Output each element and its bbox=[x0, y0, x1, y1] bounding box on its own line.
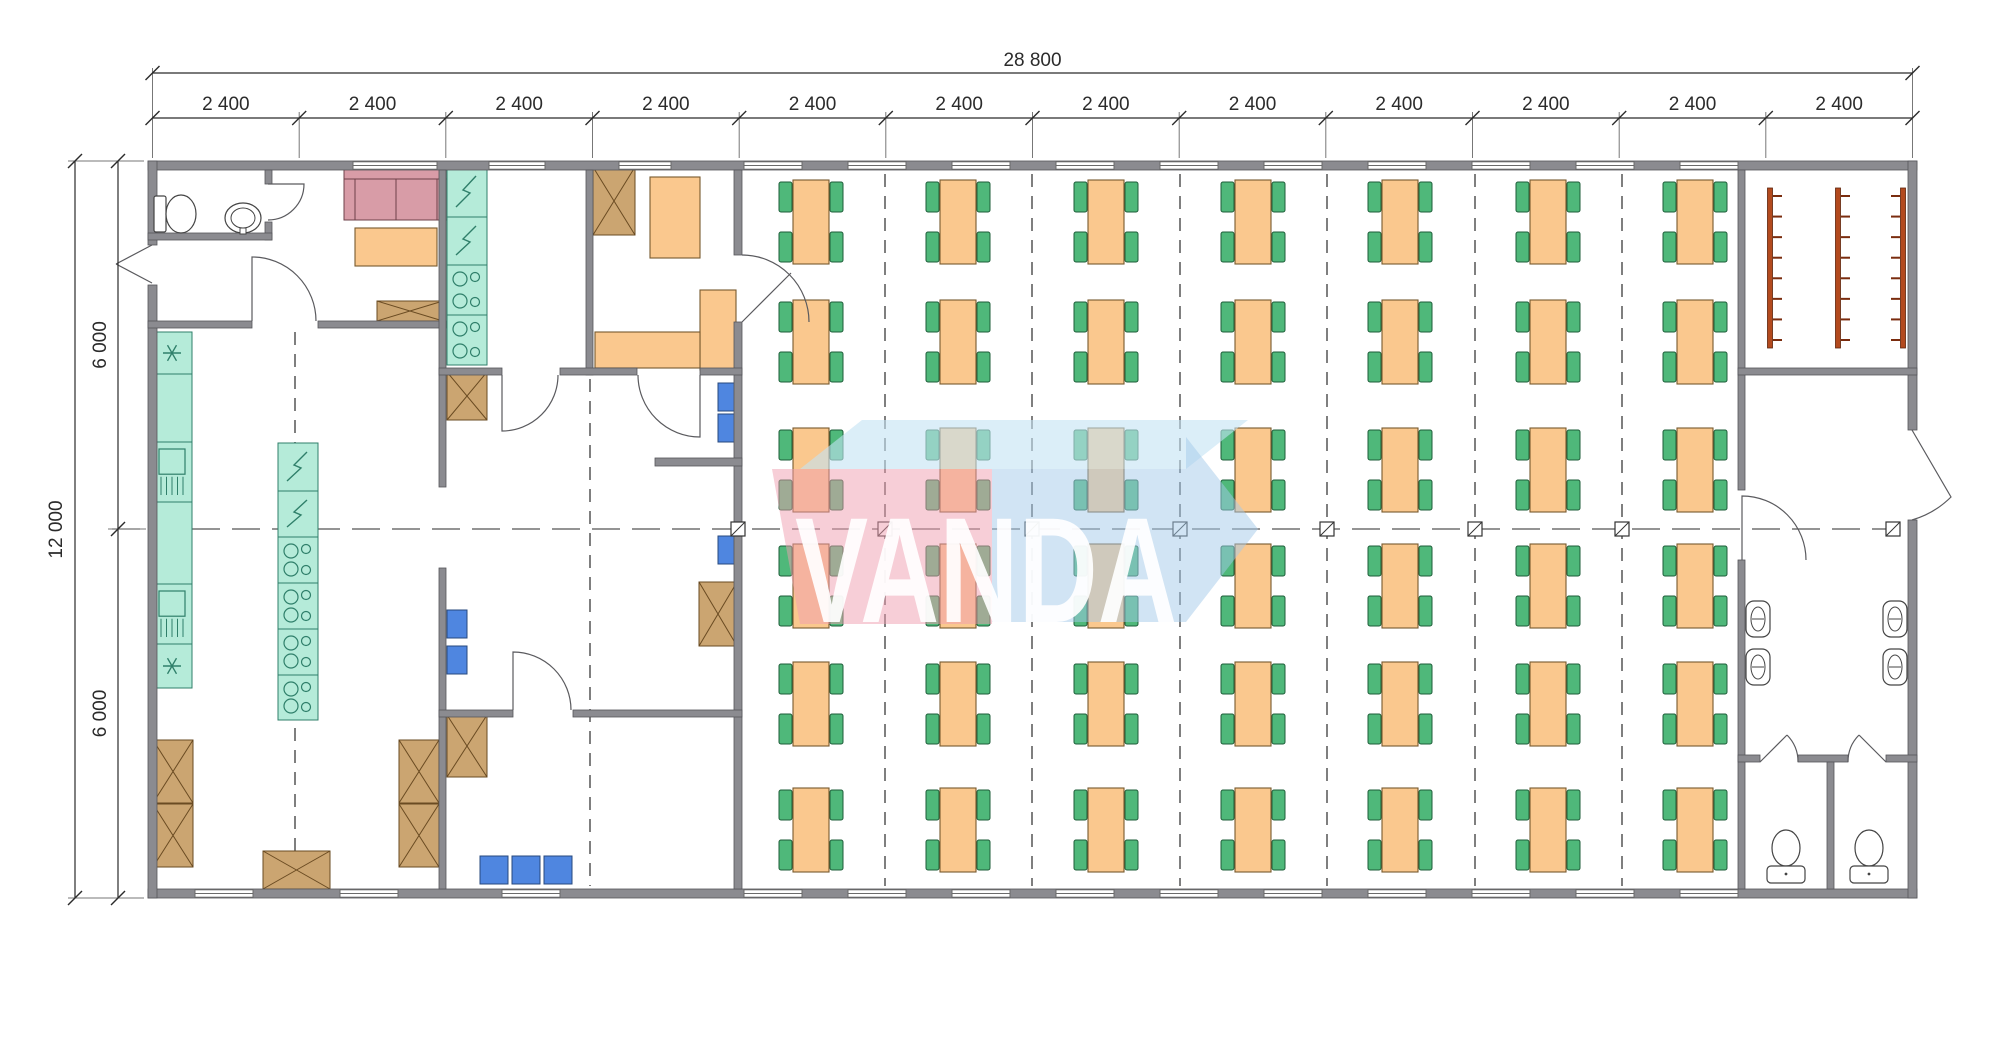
wall-segment bbox=[1738, 560, 1745, 889]
dining-table-group bbox=[1516, 788, 1580, 872]
chair bbox=[1419, 182, 1432, 212]
dining-table-group bbox=[1368, 788, 1432, 872]
chair bbox=[1272, 352, 1285, 382]
door-swing bbox=[116, 245, 152, 283]
chair bbox=[1714, 790, 1727, 820]
appliance-plain bbox=[152, 374, 192, 442]
chair bbox=[1272, 664, 1285, 694]
dining-table-group bbox=[779, 662, 843, 746]
dining-table-group bbox=[926, 662, 990, 746]
chair bbox=[1567, 596, 1580, 626]
chair bbox=[1125, 790, 1138, 820]
dining-table bbox=[793, 300, 829, 384]
door-swing bbox=[638, 375, 700, 437]
chair bbox=[1567, 714, 1580, 744]
stool bbox=[544, 856, 572, 884]
chair bbox=[1125, 840, 1138, 870]
dining-table bbox=[1382, 662, 1418, 746]
dining-table bbox=[1382, 428, 1418, 512]
chair bbox=[779, 182, 792, 212]
chair bbox=[1419, 790, 1432, 820]
chair bbox=[1516, 714, 1529, 744]
chair bbox=[779, 790, 792, 820]
chair bbox=[1663, 352, 1676, 382]
sofa-seat bbox=[396, 179, 437, 220]
chair bbox=[1714, 232, 1727, 262]
dining-table-group bbox=[1663, 544, 1727, 628]
chair bbox=[1074, 664, 1087, 694]
chair bbox=[830, 664, 843, 694]
chair bbox=[1272, 840, 1285, 870]
wc-bowl bbox=[166, 195, 196, 233]
chair bbox=[779, 302, 792, 332]
chair bbox=[1368, 546, 1381, 576]
dining-table bbox=[793, 788, 829, 872]
chair bbox=[779, 352, 792, 382]
dining-table bbox=[1382, 544, 1418, 628]
appliance-plain bbox=[152, 502, 192, 584]
dining-table bbox=[1677, 300, 1713, 384]
stool bbox=[480, 856, 508, 884]
dim-label-bay: 2 400 bbox=[1229, 94, 1277, 115]
dining-table-group bbox=[1516, 544, 1580, 628]
dining-table bbox=[1677, 180, 1713, 264]
counter-table bbox=[595, 332, 700, 368]
dim-label-bay: 2 400 bbox=[1815, 94, 1863, 115]
dining-table-group bbox=[1074, 300, 1138, 384]
chair bbox=[926, 714, 939, 744]
chair bbox=[1663, 714, 1676, 744]
chair bbox=[1221, 302, 1234, 332]
chair bbox=[1516, 430, 1529, 460]
dining-table-group bbox=[1368, 300, 1432, 384]
wall-segment bbox=[1738, 170, 1745, 490]
stool bbox=[512, 856, 540, 884]
dim-label-bay: 2 400 bbox=[935, 94, 983, 115]
chair bbox=[1419, 664, 1432, 694]
dining-table-group bbox=[1221, 300, 1285, 384]
chair bbox=[1368, 430, 1381, 460]
dining-table bbox=[1530, 428, 1566, 512]
dim-label-bay: 2 400 bbox=[1082, 94, 1130, 115]
wall-segment bbox=[586, 170, 593, 375]
dim-label-half-height: 6 000 bbox=[90, 690, 111, 738]
dim-label-overall-width: 28 800 bbox=[1003, 50, 1061, 71]
dim-label-bay: 2 400 bbox=[642, 94, 690, 115]
chair bbox=[1419, 302, 1432, 332]
dining-table bbox=[940, 300, 976, 384]
chair bbox=[1074, 232, 1087, 262]
dining-table-group bbox=[1663, 180, 1727, 264]
chair bbox=[926, 352, 939, 382]
appliance-stove bbox=[278, 583, 318, 629]
dim-label-bay: 2 400 bbox=[349, 94, 397, 115]
appliance-stove bbox=[278, 675, 318, 720]
chair bbox=[830, 790, 843, 820]
dining-table-group bbox=[1663, 300, 1727, 384]
dining-table-group bbox=[1663, 788, 1727, 872]
chair bbox=[830, 352, 843, 382]
chair bbox=[926, 182, 939, 212]
dining-table bbox=[1677, 428, 1713, 512]
sofa-arm bbox=[344, 179, 355, 220]
door-swing bbox=[1742, 496, 1806, 560]
wall-segment bbox=[148, 285, 157, 898]
chair bbox=[1074, 714, 1087, 744]
washbasin-tap bbox=[240, 228, 246, 234]
wall-segment bbox=[439, 170, 446, 487]
wall-segment bbox=[1908, 161, 1917, 430]
dining-table-group bbox=[1368, 544, 1432, 628]
chair bbox=[1714, 714, 1727, 744]
chair bbox=[779, 664, 792, 694]
dining-table-group bbox=[1516, 662, 1580, 746]
chair bbox=[1663, 546, 1676, 576]
chair bbox=[1221, 232, 1234, 262]
chair bbox=[830, 714, 843, 744]
dining-table bbox=[940, 788, 976, 872]
chair bbox=[1368, 232, 1381, 262]
dining-table-group bbox=[779, 180, 843, 264]
chair bbox=[1272, 546, 1285, 576]
dining-table bbox=[1235, 662, 1271, 746]
chair bbox=[977, 790, 990, 820]
chair bbox=[977, 714, 990, 744]
coat-rack bbox=[1836, 188, 1841, 348]
dining-table-group bbox=[1221, 180, 1285, 264]
chair bbox=[977, 352, 990, 382]
chair bbox=[1516, 302, 1529, 332]
chair bbox=[1419, 546, 1432, 576]
wc-tank bbox=[154, 196, 166, 232]
watermark: VANDA bbox=[772, 420, 1258, 654]
wall-segment bbox=[148, 233, 272, 240]
wall-segment bbox=[1798, 755, 1848, 762]
dining-table bbox=[793, 662, 829, 746]
chair bbox=[1714, 596, 1727, 626]
dim-label-bay: 2 400 bbox=[202, 94, 250, 115]
chair bbox=[830, 182, 843, 212]
chair bbox=[1663, 596, 1676, 626]
chair bbox=[1714, 352, 1727, 382]
chair bbox=[1125, 352, 1138, 382]
chair bbox=[977, 664, 990, 694]
dining-table-group bbox=[926, 788, 990, 872]
dining-table bbox=[940, 662, 976, 746]
dining-table bbox=[1530, 300, 1566, 384]
chair bbox=[779, 840, 792, 870]
dining-table-group bbox=[1516, 428, 1580, 512]
chair bbox=[1516, 790, 1529, 820]
dining-table bbox=[940, 180, 976, 264]
dim-label-overall-height: 12 000 bbox=[46, 500, 67, 558]
chair bbox=[1125, 232, 1138, 262]
coat-rack bbox=[1768, 188, 1773, 348]
stool bbox=[447, 646, 467, 674]
chair bbox=[1714, 302, 1727, 332]
dining-table bbox=[1088, 662, 1124, 746]
wall-segment bbox=[560, 368, 637, 375]
sofa-seat bbox=[355, 179, 396, 220]
chair bbox=[1074, 302, 1087, 332]
wc-base-dot bbox=[1785, 873, 1788, 876]
wall-segment bbox=[573, 710, 742, 717]
door-swing bbox=[502, 375, 558, 431]
chair bbox=[1516, 546, 1529, 576]
chair bbox=[1221, 790, 1234, 820]
chair bbox=[1567, 352, 1580, 382]
chair bbox=[1663, 430, 1676, 460]
dining-table bbox=[1382, 300, 1418, 384]
door-swing bbox=[1912, 430, 1951, 520]
chair bbox=[1567, 302, 1580, 332]
chair bbox=[1272, 302, 1285, 332]
floor-plan-canvas: 28 8002 4002 4002 4002 4002 4002 4002 40… bbox=[0, 0, 2000, 1041]
chair bbox=[1567, 480, 1580, 510]
dining-table bbox=[1088, 180, 1124, 264]
chair bbox=[1419, 596, 1432, 626]
wall-segment bbox=[1886, 755, 1917, 762]
chair bbox=[1714, 182, 1727, 212]
chair bbox=[1125, 664, 1138, 694]
dining-table bbox=[1530, 180, 1566, 264]
dining-table-group bbox=[1074, 788, 1138, 872]
chair bbox=[1125, 714, 1138, 744]
wall-segment bbox=[1908, 520, 1917, 898]
chair bbox=[1221, 182, 1234, 212]
dining-table-group bbox=[1368, 662, 1432, 746]
wall-segment bbox=[318, 321, 446, 328]
chair bbox=[1074, 790, 1087, 820]
appliance-stove bbox=[447, 265, 487, 315]
wall-segment bbox=[734, 170, 742, 255]
chair bbox=[926, 664, 939, 694]
wall-segment bbox=[700, 368, 742, 375]
wall-segment bbox=[655, 458, 742, 466]
appliance-stove bbox=[278, 537, 318, 583]
chair bbox=[1272, 182, 1285, 212]
wc-base-dot bbox=[1868, 873, 1871, 876]
dim-label-bay: 2 400 bbox=[789, 94, 837, 115]
counter-table bbox=[650, 177, 700, 258]
chair bbox=[1663, 302, 1676, 332]
dining-table-group bbox=[1516, 300, 1580, 384]
chair bbox=[830, 232, 843, 262]
chair bbox=[1419, 352, 1432, 382]
chair bbox=[1567, 546, 1580, 576]
dining-table bbox=[1235, 180, 1271, 264]
stool bbox=[718, 536, 736, 564]
chair bbox=[926, 790, 939, 820]
dining-table bbox=[1677, 788, 1713, 872]
chair bbox=[1074, 182, 1087, 212]
chair bbox=[1125, 302, 1138, 332]
dim-label-bay: 2 400 bbox=[1375, 94, 1423, 115]
chair bbox=[1368, 596, 1381, 626]
chair bbox=[977, 232, 990, 262]
chair bbox=[1074, 352, 1087, 382]
dining-table-group bbox=[1368, 428, 1432, 512]
dining-table-group bbox=[779, 300, 843, 384]
dim-label-half-height: 6 000 bbox=[90, 321, 111, 369]
chair bbox=[1567, 430, 1580, 460]
dining-table-group bbox=[1221, 788, 1285, 872]
chair bbox=[1221, 596, 1234, 626]
chair bbox=[1368, 182, 1381, 212]
door-swing bbox=[252, 257, 316, 321]
chair bbox=[1663, 182, 1676, 212]
chair bbox=[1419, 480, 1432, 510]
chair bbox=[926, 302, 939, 332]
dining-table-group bbox=[926, 300, 990, 384]
chair bbox=[1567, 790, 1580, 820]
chair bbox=[1516, 664, 1529, 694]
door-swing bbox=[1848, 735, 1886, 762]
dining-table bbox=[1088, 300, 1124, 384]
chair bbox=[1272, 596, 1285, 626]
chair bbox=[1714, 480, 1727, 510]
dining-table bbox=[1530, 544, 1566, 628]
chair bbox=[1714, 664, 1727, 694]
chair bbox=[1567, 664, 1580, 694]
chair bbox=[1663, 790, 1676, 820]
chair bbox=[1567, 232, 1580, 262]
dining-table bbox=[1677, 662, 1713, 746]
stool bbox=[718, 414, 736, 442]
coat-rack bbox=[1901, 188, 1906, 348]
dining-table-group bbox=[779, 788, 843, 872]
dining-table-group bbox=[1516, 180, 1580, 264]
chair bbox=[977, 182, 990, 212]
stool bbox=[447, 610, 467, 638]
wall-segment bbox=[439, 710, 513, 717]
counter-table bbox=[700, 290, 736, 370]
dining-table bbox=[1235, 544, 1271, 628]
chair bbox=[1663, 664, 1676, 694]
chair bbox=[926, 840, 939, 870]
chair bbox=[1221, 664, 1234, 694]
wall-segment bbox=[265, 170, 272, 184]
chair bbox=[1714, 546, 1727, 576]
chair bbox=[830, 840, 843, 870]
watermark-text: VANDA bbox=[795, 486, 1177, 654]
dining-table-group bbox=[926, 180, 990, 264]
dining-table bbox=[793, 180, 829, 264]
chair bbox=[1272, 480, 1285, 510]
dining-table bbox=[1382, 180, 1418, 264]
chair bbox=[779, 430, 792, 460]
chair bbox=[1516, 596, 1529, 626]
dim-label-bay: 2 400 bbox=[1669, 94, 1717, 115]
chair bbox=[1516, 182, 1529, 212]
chair bbox=[1419, 714, 1432, 744]
chair bbox=[1368, 664, 1381, 694]
chair bbox=[1567, 182, 1580, 212]
dim-label-bay: 2 400 bbox=[495, 94, 543, 115]
dining-table-group bbox=[1663, 428, 1727, 512]
chair bbox=[1272, 714, 1285, 744]
counter-table bbox=[355, 228, 437, 266]
chair bbox=[1368, 840, 1381, 870]
dining-table bbox=[1235, 300, 1271, 384]
door-swing bbox=[268, 184, 304, 220]
chair bbox=[1516, 232, 1529, 262]
chair bbox=[1663, 232, 1676, 262]
wall-segment bbox=[1827, 762, 1834, 889]
appliance-stove bbox=[447, 315, 487, 365]
chair bbox=[977, 840, 990, 870]
chair bbox=[1567, 840, 1580, 870]
wall-segment bbox=[1738, 755, 1760, 762]
chair bbox=[779, 232, 792, 262]
dining-table-group bbox=[1074, 180, 1138, 264]
door-swing bbox=[513, 652, 571, 710]
dining-table bbox=[1382, 788, 1418, 872]
chair bbox=[779, 596, 792, 626]
wc-bowl bbox=[1855, 830, 1883, 866]
chair bbox=[1516, 840, 1529, 870]
stool bbox=[718, 383, 736, 411]
chair bbox=[1074, 840, 1087, 870]
dining-table bbox=[1530, 662, 1566, 746]
wall-segment bbox=[1738, 368, 1917, 375]
wall-segment bbox=[439, 368, 502, 375]
chair bbox=[1368, 302, 1381, 332]
chair bbox=[779, 714, 792, 744]
chair bbox=[830, 302, 843, 332]
dining-table-group bbox=[1221, 662, 1285, 746]
dining-table bbox=[1235, 428, 1271, 512]
chair bbox=[1221, 714, 1234, 744]
chair bbox=[1516, 352, 1529, 382]
chair bbox=[1516, 480, 1529, 510]
chair bbox=[1221, 352, 1234, 382]
dining-table bbox=[1677, 544, 1713, 628]
chair bbox=[1368, 480, 1381, 510]
chair bbox=[1272, 430, 1285, 460]
chair bbox=[1272, 232, 1285, 262]
chair bbox=[1368, 714, 1381, 744]
chair bbox=[1272, 790, 1285, 820]
dining-table bbox=[1530, 788, 1566, 872]
chair bbox=[1368, 352, 1381, 382]
chair bbox=[977, 302, 990, 332]
chair bbox=[926, 232, 939, 262]
chair bbox=[1714, 430, 1727, 460]
wall-segment bbox=[148, 889, 1917, 898]
dining-table bbox=[1235, 788, 1271, 872]
chair bbox=[1419, 232, 1432, 262]
chair bbox=[1714, 840, 1727, 870]
chair bbox=[1663, 840, 1676, 870]
dim-label-bay: 2 400 bbox=[1522, 94, 1570, 115]
watermark-top-face bbox=[800, 420, 1248, 469]
wall-segment bbox=[734, 322, 742, 889]
dining-table-group bbox=[1074, 662, 1138, 746]
wall-segment bbox=[148, 321, 252, 328]
dining-table-group bbox=[1663, 662, 1727, 746]
appliance-stove bbox=[278, 629, 318, 675]
chair bbox=[1221, 840, 1234, 870]
chair bbox=[1419, 840, 1432, 870]
dining-table bbox=[1088, 788, 1124, 872]
door-swing bbox=[1760, 735, 1798, 762]
chair bbox=[1663, 480, 1676, 510]
wc-bowl bbox=[1772, 830, 1800, 866]
chair bbox=[1368, 790, 1381, 820]
dining-table-group bbox=[1368, 180, 1432, 264]
wall-segment bbox=[439, 568, 446, 889]
